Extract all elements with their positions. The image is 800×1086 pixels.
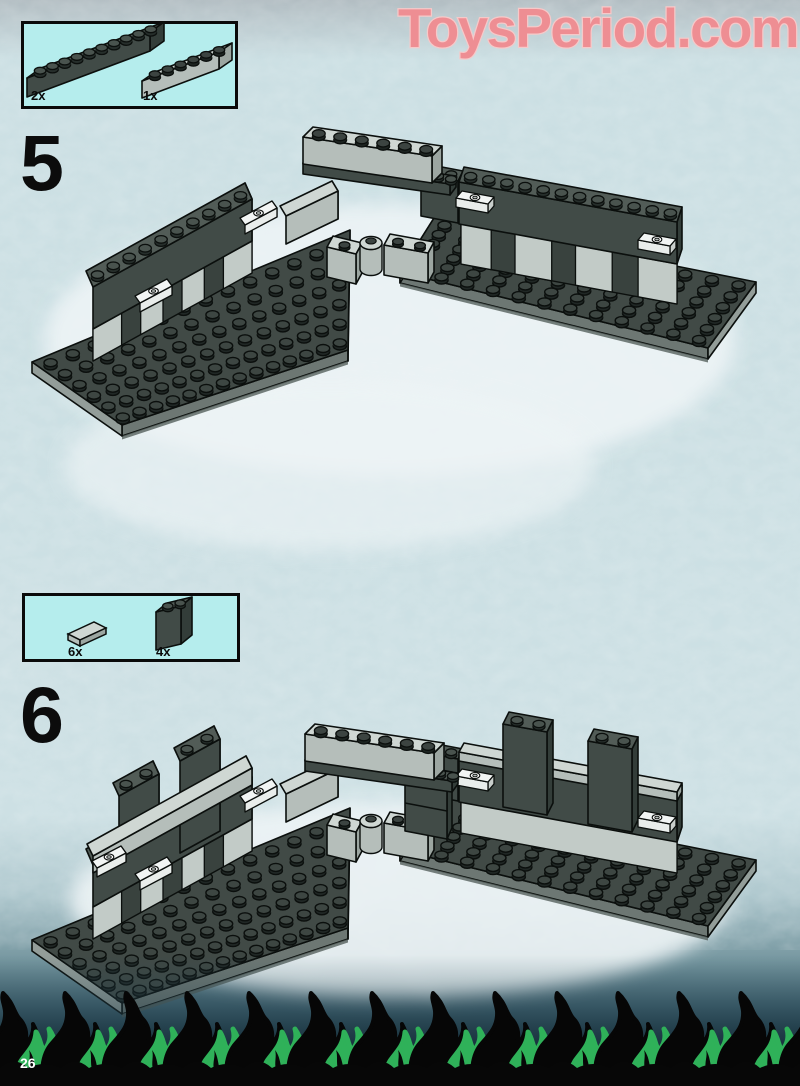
svg-text:6x: 6x [68, 644, 83, 659]
svg-text:5: 5 [20, 118, 64, 207]
svg-text:2x: 2x [31, 88, 46, 103]
svg-text:ToysPeriod.com: ToysPeriod.com [398, 0, 798, 59]
svg-text:4x: 4x [156, 644, 171, 659]
svg-text:6: 6 [20, 670, 64, 759]
svg-text:1x: 1x [143, 88, 158, 103]
svg-text:26: 26 [20, 1055, 36, 1071]
